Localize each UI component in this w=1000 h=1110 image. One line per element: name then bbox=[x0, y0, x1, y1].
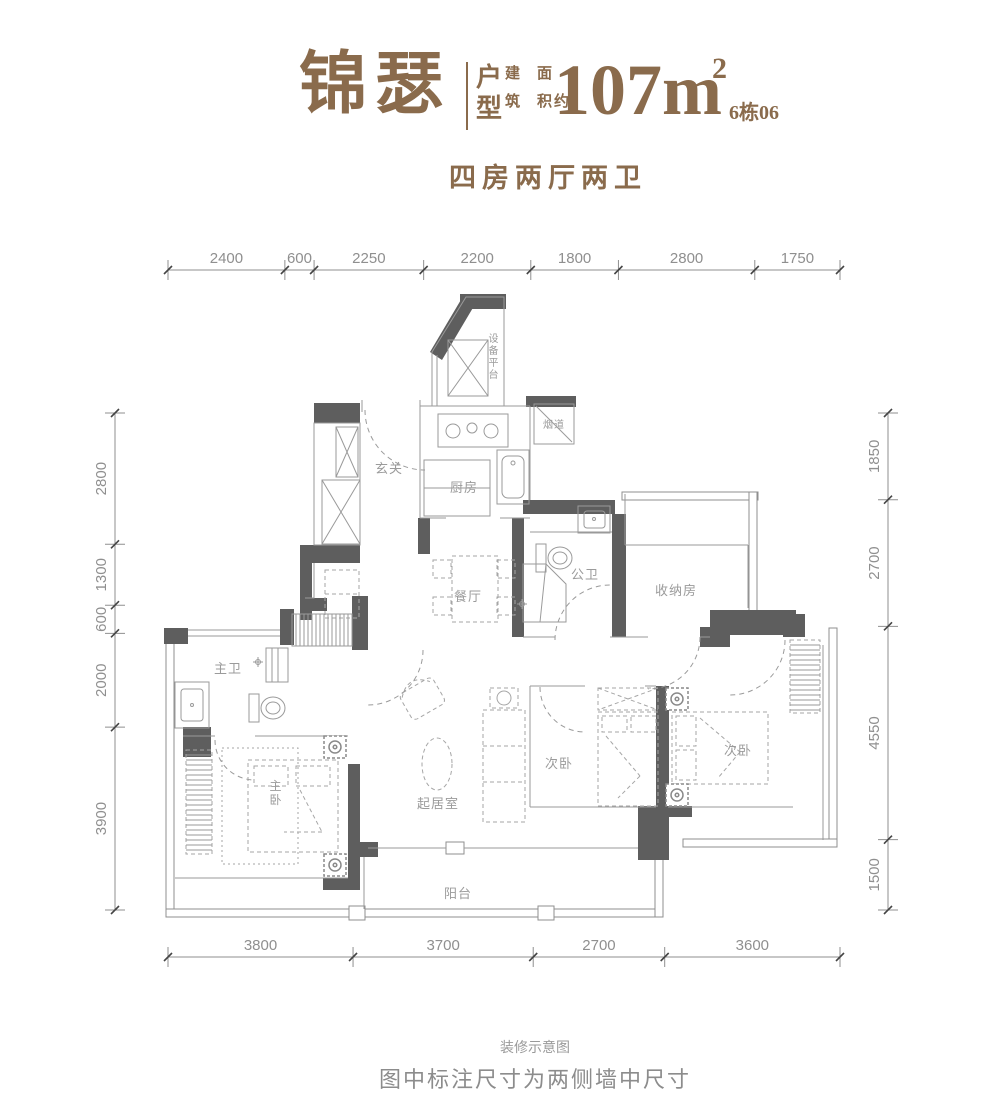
room-label: 阳台 bbox=[444, 886, 472, 901]
room-label: 餐厅 bbox=[454, 589, 482, 604]
dim-label: 2250 bbox=[352, 250, 385, 267]
dim-label: 1500 bbox=[866, 858, 883, 891]
dim-label: 3800 bbox=[244, 937, 277, 954]
dim-chain-top: 240060022502200180028001750 bbox=[164, 250, 844, 280]
dim-label: 1750 bbox=[781, 250, 814, 267]
room-label: 玄关 bbox=[375, 461, 403, 476]
room-label: 主卫 bbox=[214, 661, 242, 676]
dim-chain-bottom: 3800370027003600 bbox=[164, 937, 844, 967]
room-label: 设备平台 bbox=[489, 333, 500, 381]
dim-label: 3700 bbox=[426, 937, 459, 954]
dim-label: 2800 bbox=[93, 462, 110, 495]
dim-label: 2700 bbox=[582, 937, 615, 954]
dim-label: 1300 bbox=[93, 558, 110, 591]
footer-caption: 图中标注尺寸为两侧墙中尺寸 bbox=[285, 1062, 785, 1094]
room-label: 收纳房 bbox=[655, 583, 697, 598]
room-label: 主卧 bbox=[269, 779, 282, 807]
dim-label: 600 bbox=[93, 607, 110, 632]
dim-label: 600 bbox=[287, 250, 312, 267]
wardrobe-hatching bbox=[186, 614, 820, 850]
room-label: 公卫 bbox=[571, 567, 599, 582]
room-label: 烟道 bbox=[543, 418, 565, 431]
room-label: 次卧 bbox=[724, 743, 752, 758]
furniture bbox=[186, 556, 820, 864]
floorplan-page: 锦瑟 户型 建面筑积约 107m 2 6栋06 四房两厅两卫 bbox=[0, 0, 1000, 1110]
floor-plan: 2400600225022001800280017503800370027003… bbox=[0, 0, 1000, 1110]
room-label: 起居室 bbox=[417, 796, 459, 811]
walls bbox=[164, 294, 805, 890]
footer-note: 装修示意图 bbox=[285, 1037, 785, 1057]
room-label: 次卧 bbox=[545, 756, 573, 771]
dim-label: 2200 bbox=[461, 250, 494, 267]
dim-label: 4550 bbox=[866, 716, 883, 749]
floor-plan-svg: 2400600225022001800280017503800370027003… bbox=[0, 0, 1000, 1110]
dim-chain-left: 2800130060020003900 bbox=[93, 409, 125, 914]
dim-chain-right: 1850270045501500 bbox=[866, 409, 898, 914]
structure-lines bbox=[175, 297, 823, 909]
room-label: 厨房 bbox=[450, 480, 478, 495]
dim-label: 1850 bbox=[866, 440, 883, 473]
dim-label: 2800 bbox=[670, 250, 703, 267]
dim-label: 3900 bbox=[93, 802, 110, 835]
dim-label: 2400 bbox=[210, 250, 243, 267]
dim-label: 2700 bbox=[866, 546, 883, 579]
dim-label: 1800 bbox=[558, 250, 591, 267]
dim-label: 3600 bbox=[736, 937, 769, 954]
dim-label: 2000 bbox=[93, 664, 110, 697]
